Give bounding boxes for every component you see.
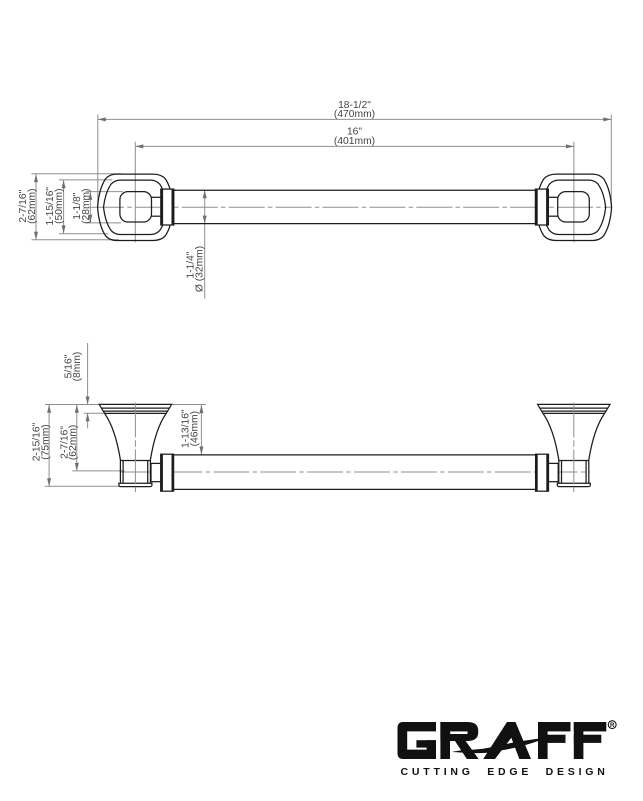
svg-text:CUTTING EDGE DESIGN: CUTTING EDGE DESIGN [401,766,609,778]
svg-text:(470mm): (470mm) [334,109,375,120]
svg-text:(46mm): (46mm) [189,411,200,446]
svg-text:(50mm): (50mm) [54,188,65,223]
svg-text:(28mm): (28mm) [81,188,92,223]
svg-text:(62mm): (62mm) [27,188,38,223]
svg-text:(75mm): (75mm) [40,424,51,459]
svg-text:(401mm): (401mm) [334,136,375,147]
svg-text:(62mm): (62mm) [68,425,79,460]
svg-text:(8mm): (8mm) [72,352,83,382]
svg-text:R: R [610,722,615,729]
svg-text:Ø (32mm): Ø (32mm) [195,246,206,292]
